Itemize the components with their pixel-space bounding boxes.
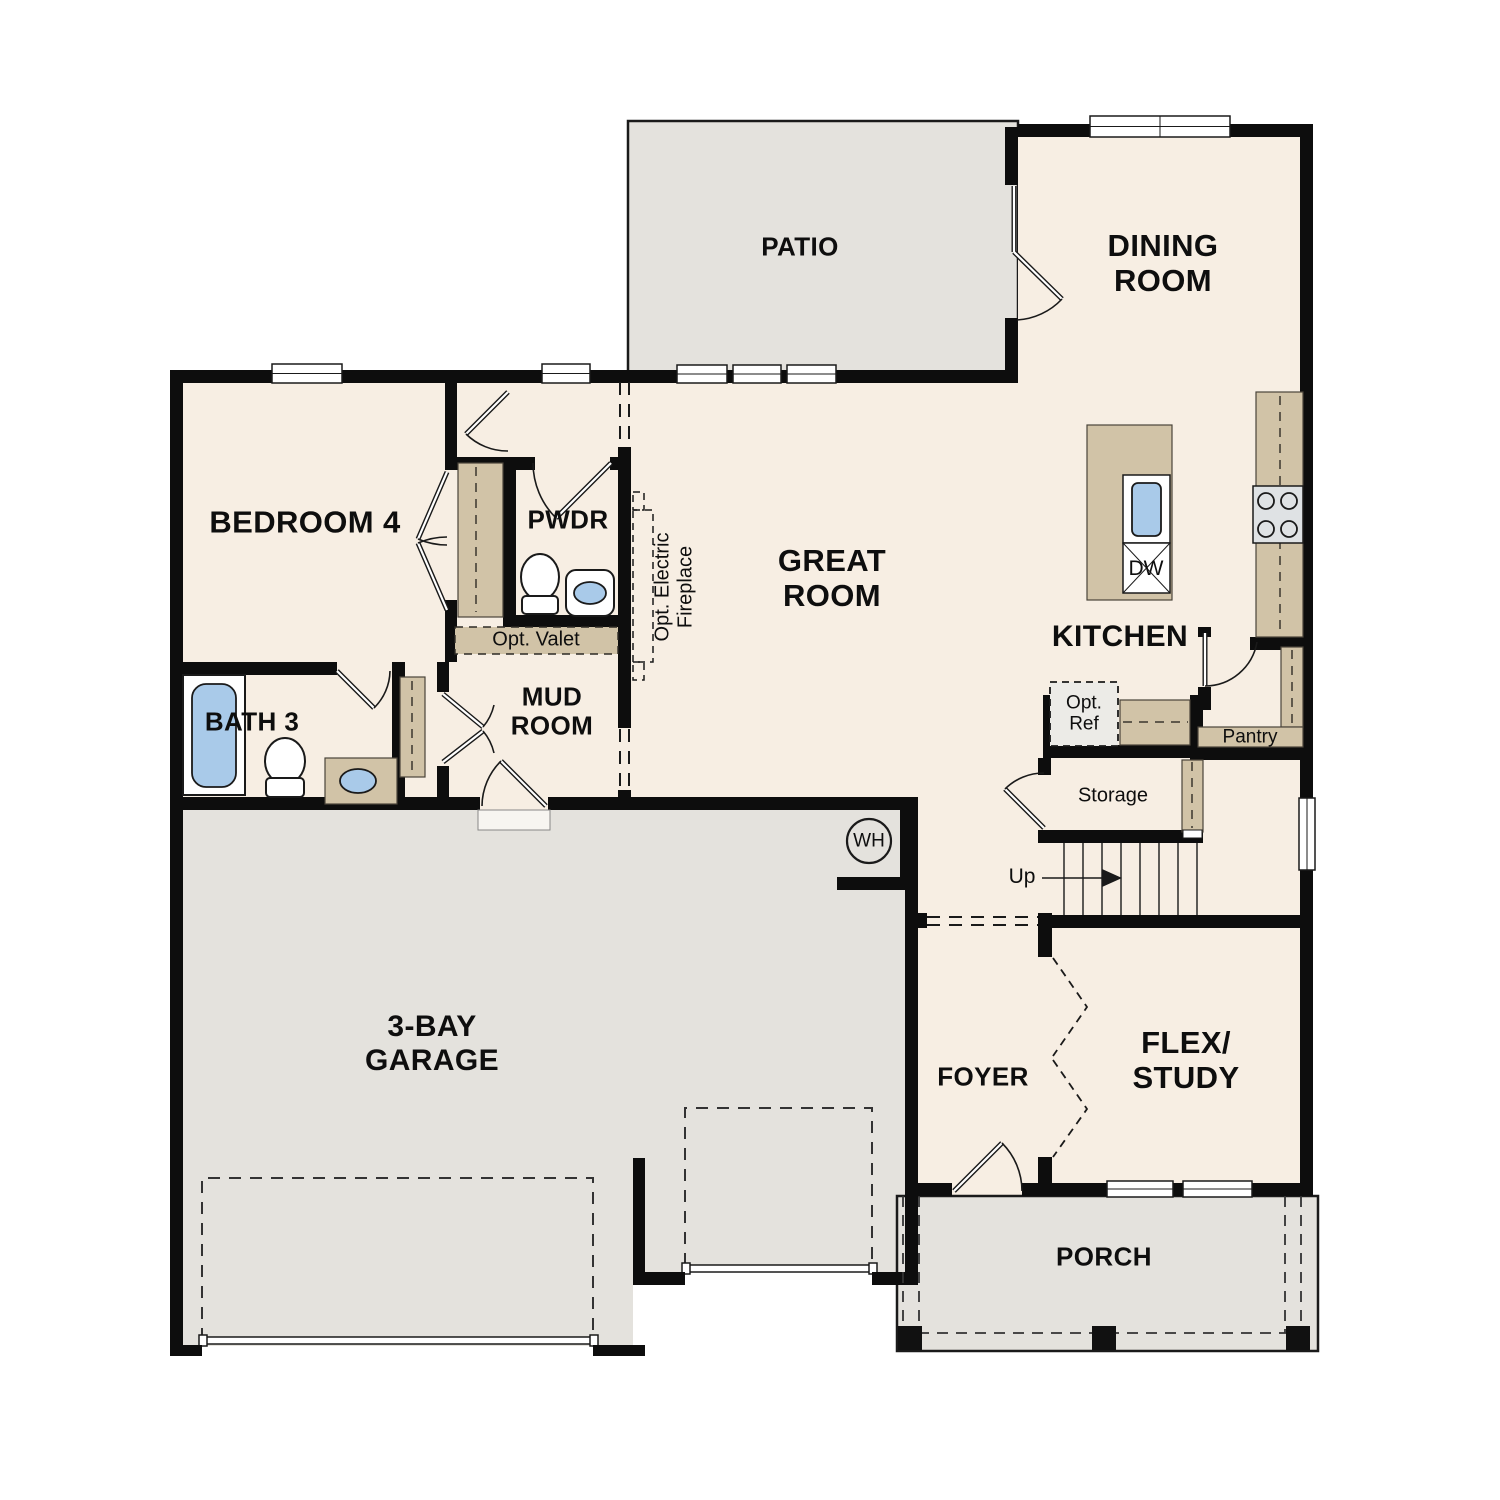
bath3-sink (340, 769, 376, 793)
bedroom4-closet (458, 463, 503, 617)
label-great-room: GREAT ROOM (778, 543, 886, 613)
label-dishwasher: DW (1129, 557, 1164, 581)
label-opt-fireplace: Opt. Electric Fireplace (651, 533, 696, 642)
label-bath-3: BATH 3 (205, 707, 299, 736)
foyer-floor (918, 915, 1050, 1196)
island-sink (1132, 483, 1161, 536)
label-mud-room: MUD ROOM (511, 683, 593, 742)
label-bedroom-4: BEDROOM 4 (209, 504, 400, 539)
garage-floor (183, 810, 905, 1272)
powder-toilet (521, 554, 559, 600)
garage-door-cap (590, 1335, 598, 1346)
label-porch: PORCH (1056, 1242, 1152, 1271)
garage-door-cap (199, 1335, 207, 1346)
label-opt-valet: Opt. Valet (492, 629, 579, 652)
label-up: Up (1009, 865, 1036, 889)
garage-floor-left-bay (183, 1272, 633, 1346)
porch-post (898, 1326, 922, 1350)
garage-door-double (202, 1337, 593, 1344)
label-garage: 3-BAY GARAGE (365, 1010, 499, 1078)
floor-plan-drawing (0, 0, 1500, 1500)
label-pantry: Pantry (1223, 726, 1278, 747)
bath3-toilet-base (266, 778, 304, 797)
label-flex-study: FLEX/ STUDY (1132, 1025, 1239, 1095)
powder-sink (574, 582, 606, 604)
label-water-heater: WH (853, 830, 885, 851)
label-storage: Storage (1078, 785, 1148, 808)
label-opt-ref: Opt. Ref (1066, 693, 1102, 736)
garage-door-single (685, 1265, 872, 1272)
porch-post (1286, 1326, 1310, 1350)
label-powder: PWDR (527, 505, 608, 534)
garage-stoop (478, 810, 550, 830)
powder-toilet-base (522, 596, 558, 614)
porch-post (1092, 1326, 1116, 1350)
floor-plan: PATIO DINING ROOM BEDROOM 4 PWDR Opt. Va… (0, 0, 1500, 1500)
label-dining-room: DINING ROOM (1108, 228, 1219, 298)
label-patio: PATIO (761, 232, 839, 261)
label-foyer: FOYER (937, 1062, 1029, 1091)
label-kitchen: KITCHEN (1052, 620, 1188, 654)
